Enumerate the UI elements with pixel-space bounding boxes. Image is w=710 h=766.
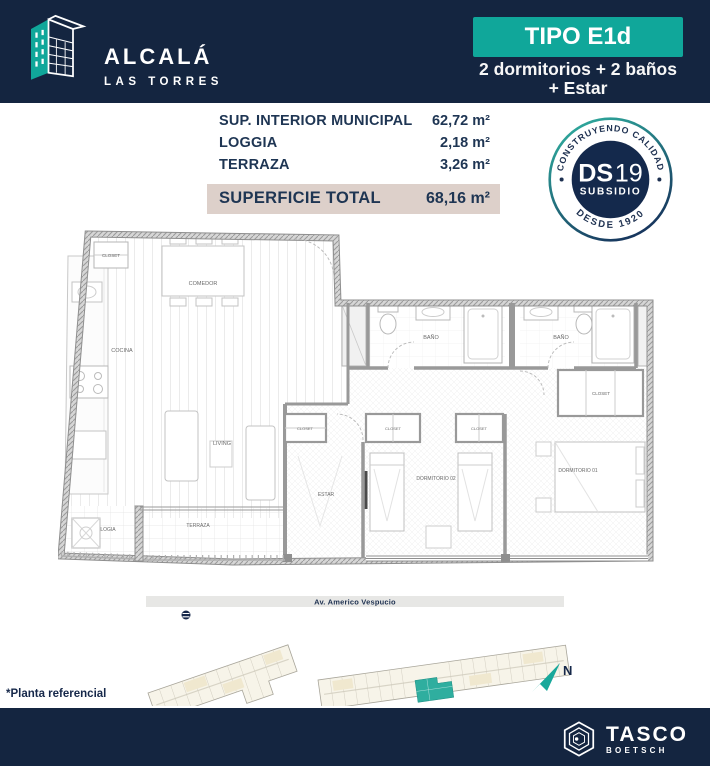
room-label-closet-hall: CLOSET (297, 426, 314, 431)
surface-row: SUP. INTERIOR MUNICIPAL 62,72 m² (207, 110, 500, 132)
seal-main-text: DS19 (578, 160, 643, 188)
room-label-closet-entry: CLOSET (102, 253, 120, 258)
brand-name: ALCALÁ (104, 44, 223, 70)
tower-1-footprint (148, 645, 302, 706)
room-label-cocina: COCINA (111, 348, 133, 354)
room-label-bano-2: BAÑO (553, 334, 569, 341)
surface-value: 2,18 m² (440, 135, 490, 151)
street-label: Av. Americo Vespucio (314, 597, 396, 606)
room-label-terraza: TERRAZA (186, 523, 210, 529)
unit-type-badge: TIPO E1d (473, 17, 683, 57)
seal-dot-right (657, 177, 661, 181)
room-label-comedor: COMEDOR (189, 281, 218, 287)
surface-value: 3,26 m² (440, 157, 490, 173)
tower-2-footprint (318, 645, 571, 706)
room-label-closet-dorm2-b: CLOSET (471, 426, 488, 431)
room-label-closet-dorm1: CLOSET (592, 391, 610, 396)
seal-dot-left (560, 177, 564, 181)
floor-plan: CLOSET COMEDOR COCINA LIVING BAÑO BAÑO C… (58, 226, 658, 594)
room-label-dormitorio-2: DORMITORIO 02 (416, 476, 456, 482)
surface-label: LOGGIA (219, 135, 277, 151)
room-label-logia: LOGIA (100, 527, 116, 533)
surface-row: LOGGIA 2,18 m² (207, 132, 500, 154)
brand-text: ALCALÁ LAS TORRES (104, 44, 223, 88)
flyer-page: ALCALÁ LAS TORRES TIPO E1d 2 dormitorios… (0, 0, 710, 766)
seal-sub-text: SUBSIDIO (580, 187, 642, 198)
tasco-subname: BOETSCH (606, 746, 688, 755)
ds19-subsidio-seal: CONSTRUYENDO CALIDAD DESDE 1920 DS19 SUB… (547, 116, 674, 243)
footer-band: TASCO BOETSCH (0, 708, 710, 766)
type-desc-line1: 2 dormitorios + 2 baños (452, 60, 704, 79)
metro-icon (182, 611, 191, 620)
reference-footnote: *Planta referencial (6, 688, 106, 700)
tasco-logo: TASCO BOETSCH (561, 720, 688, 758)
room-label-closet-dorm2-a: CLOSET (385, 426, 402, 431)
building-logo-icon (24, 13, 94, 87)
site-plan: Av. Americo Vespucio N (60, 594, 650, 706)
surface-label: SUP. INTERIOR MUNICIPAL (219, 113, 412, 129)
room-label-living: LIVING (213, 441, 231, 447)
room-label-bano-1: BAÑO (423, 334, 439, 341)
surface-value: 62,72 m² (432, 113, 490, 129)
surface-table: SUP. INTERIOR MUNICIPAL 62,72 m² LOGGIA … (207, 110, 500, 214)
room-label-dormitorio-1: DORMITORIO 01 (558, 468, 598, 474)
north-label: N (563, 663, 572, 678)
brand-subtitle: LAS TORRES (104, 76, 223, 88)
tasco-text: TASCO BOETSCH (606, 724, 688, 755)
room-label-estar: ESTAR (318, 492, 335, 498)
type-desc-line2: + Estar (452, 79, 704, 98)
surface-total-row: SUPERFICIE TOTAL 68,16 m² (207, 184, 500, 214)
unit-type-description: 2 dormitorios + 2 baños + Estar (452, 60, 704, 98)
surface-label: TERRAZA (219, 157, 290, 173)
header-band: ALCALÁ LAS TORRES TIPO E1d 2 dormitorios… (0, 0, 710, 103)
tasco-name: TASCO (606, 724, 688, 745)
tasco-hexagon-icon (561, 720, 597, 758)
surface-total-label: SUPERFICIE TOTAL (219, 189, 381, 208)
surface-row: TERRAZA 3,26 m² (207, 154, 500, 176)
surface-total-value: 68,16 m² (426, 190, 490, 208)
